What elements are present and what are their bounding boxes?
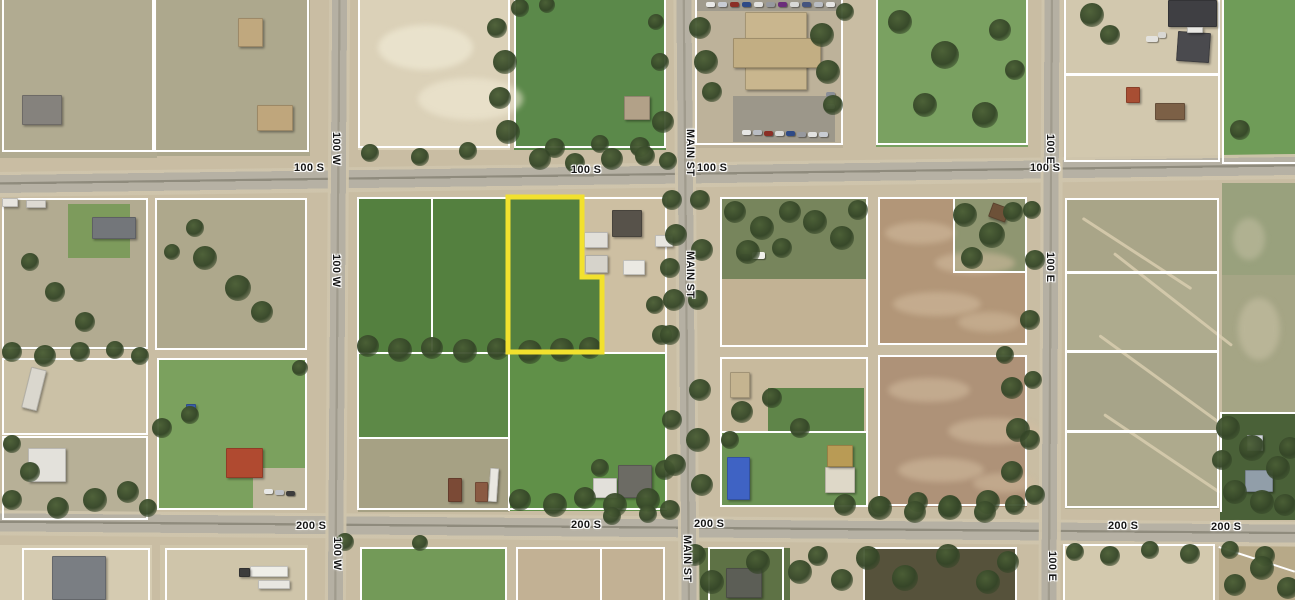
barn-ne-2	[1176, 31, 1211, 63]
shed-w-small-2	[26, 200, 46, 208]
tree	[700, 570, 724, 594]
tree	[836, 3, 854, 21]
shed-mid-1	[584, 232, 608, 248]
parcel-boundary-w-5	[157, 358, 307, 510]
tree	[2, 342, 22, 362]
field-texture-patch	[1238, 298, 1280, 360]
parcel-boundary-dirt-lot	[358, 0, 510, 148]
tree	[702, 82, 722, 102]
parked-car	[730, 2, 739, 7]
tree	[421, 337, 443, 359]
parked-car	[718, 2, 727, 7]
house-w-1	[92, 217, 136, 239]
tree	[193, 246, 217, 270]
tree	[574, 487, 596, 509]
parked-car	[275, 490, 284, 495]
tree	[34, 345, 56, 367]
truck-trailer-1	[250, 566, 288, 577]
shed-e-white	[825, 467, 855, 493]
tree	[816, 60, 840, 84]
tree	[788, 560, 812, 584]
tree	[489, 87, 511, 109]
tree	[45, 282, 65, 302]
tree	[663, 289, 685, 311]
shed-e-1	[730, 372, 750, 398]
street-label: 200 S	[1211, 521, 1241, 533]
tree	[487, 18, 507, 38]
tree	[856, 546, 880, 570]
tree	[1216, 416, 1240, 440]
street-label: 100 E	[1046, 551, 1058, 581]
tree	[543, 493, 567, 517]
tree	[1100, 25, 1120, 45]
parked-car	[766, 2, 775, 7]
tree	[731, 401, 753, 423]
tree	[139, 499, 157, 517]
parked-car	[753, 130, 762, 135]
tree	[976, 570, 1000, 594]
tree	[70, 342, 90, 362]
shed-w-small-1	[2, 198, 18, 207]
street-label: 200 S	[1108, 520, 1138, 532]
tree	[830, 226, 854, 250]
tree	[493, 50, 517, 74]
tree	[931, 41, 959, 69]
tree	[750, 216, 774, 240]
tree	[790, 418, 810, 438]
parcel-boundary-w-2	[155, 198, 307, 350]
parked-car	[819, 132, 828, 137]
parcel-boundary-field-ne	[1222, 0, 1295, 164]
tree	[803, 210, 827, 234]
tree	[913, 93, 937, 117]
tree	[888, 10, 912, 34]
road-100-w	[325, 0, 350, 600]
tree	[1250, 490, 1274, 514]
house-n-tan	[257, 105, 293, 131]
parked-car	[797, 132, 806, 137]
parked-car	[790, 2, 799, 7]
parcel-boundary-farm-ne-b	[1064, 74, 1220, 162]
tree	[186, 219, 204, 237]
tree	[834, 494, 856, 516]
tree	[665, 224, 687, 246]
tree	[1230, 120, 1250, 140]
parked-car	[264, 489, 273, 494]
tree	[1001, 377, 1023, 399]
tree	[848, 200, 868, 220]
tree	[648, 14, 664, 30]
tree	[388, 338, 412, 362]
parcel-boundary-line	[600, 547, 602, 600]
parcel-boundary-se-4	[1065, 431, 1219, 508]
tree	[21, 253, 39, 271]
tree	[1212, 450, 1232, 470]
trailer-ne	[1187, 27, 1203, 33]
road-100-e	[1038, 0, 1063, 600]
tree	[736, 240, 760, 264]
tree	[1023, 201, 1041, 219]
shed-farm-2	[475, 482, 488, 502]
tree	[1006, 418, 1030, 442]
parked-car	[814, 2, 823, 7]
house-ne-brown	[1155, 103, 1185, 120]
parked-car	[764, 131, 773, 136]
tree	[251, 301, 273, 323]
tree	[131, 347, 149, 365]
tree	[20, 462, 40, 482]
parked-car	[286, 491, 295, 496]
tree	[972, 102, 998, 128]
tree	[660, 325, 680, 345]
tree	[689, 379, 711, 401]
parcel-boundary-se-2	[1065, 272, 1219, 352]
shed-mid-2	[585, 255, 608, 273]
tree	[1001, 461, 1023, 483]
parcel-boundary-line	[1220, 412, 1295, 414]
field-texture-patch	[1233, 218, 1265, 260]
street-label: 200 S	[296, 520, 326, 532]
tree	[453, 339, 477, 363]
shed-mid-3	[623, 260, 645, 275]
street-label: 100 S	[294, 162, 324, 174]
tree	[892, 565, 918, 591]
tree	[75, 312, 95, 332]
tree	[997, 551, 1019, 573]
parked-car	[1146, 36, 1158, 42]
storage-building-s	[52, 556, 106, 600]
parcel-boundary-crop-n	[514, 0, 666, 148]
shed-farm-1	[448, 478, 462, 502]
house-nw	[22, 95, 62, 125]
tree	[831, 569, 853, 591]
shed-nw	[238, 18, 263, 47]
truck-trailer-2	[258, 580, 290, 589]
parcel-boundary-line	[357, 437, 509, 439]
tree	[1003, 202, 1023, 222]
tree	[1223, 480, 1247, 504]
tree	[996, 346, 1014, 364]
parked-car	[786, 131, 795, 136]
tree	[164, 244, 180, 260]
parked-car	[775, 131, 784, 136]
tree	[152, 418, 172, 438]
tree	[953, 203, 977, 227]
parked-car	[802, 2, 811, 7]
parcel-map-canvas[interactable]: 100 S100 S100 S100 S200 S200 S200 S200 S…	[0, 0, 1295, 600]
tree	[686, 428, 710, 452]
tree	[1025, 250, 1045, 270]
tree	[651, 53, 669, 71]
street-label: 100 S	[571, 164, 601, 176]
tree	[808, 546, 828, 566]
parked-car	[1158, 32, 1166, 38]
tree	[662, 190, 682, 210]
truck-cab	[239, 568, 250, 577]
tree	[694, 50, 718, 74]
tree	[662, 410, 682, 430]
parked-car	[754, 2, 763, 7]
tree	[961, 247, 983, 269]
tree	[601, 148, 623, 170]
tree	[412, 535, 428, 551]
tree	[664, 454, 686, 476]
street-label: MAIN ST	[684, 251, 696, 298]
tree	[938, 496, 962, 520]
tree	[1180, 544, 1200, 564]
tree	[529, 148, 551, 170]
tree	[868, 496, 892, 520]
parked-car	[706, 2, 715, 7]
tree	[509, 489, 531, 511]
tree	[660, 500, 680, 520]
tree	[746, 550, 770, 574]
tree	[823, 95, 843, 115]
tree	[721, 431, 739, 449]
parked-car	[778, 2, 787, 7]
tree	[639, 505, 657, 523]
parcel-boundary-s-3	[360, 547, 507, 600]
tree	[591, 459, 609, 477]
street-label: 100 E	[1044, 134, 1056, 164]
tree	[1221, 541, 1239, 559]
parcel-boundary-e-4	[878, 355, 1027, 506]
tree	[690, 190, 710, 210]
tree	[689, 17, 711, 39]
street-label: 200 S	[571, 519, 601, 531]
shed-red	[1126, 87, 1140, 103]
tree	[1141, 541, 1159, 559]
tree	[1250, 556, 1274, 580]
tree	[459, 142, 477, 160]
tree	[117, 481, 139, 503]
tree	[1277, 577, 1295, 599]
tree	[762, 388, 782, 408]
tree	[496, 120, 520, 144]
tree	[660, 258, 680, 278]
house-blue-roof	[727, 457, 750, 500]
tree	[1066, 543, 1084, 561]
parked-car	[808, 132, 817, 137]
parcel-boundary-s-4	[516, 547, 665, 600]
house-w-red	[226, 448, 263, 478]
street-label: 100 W	[330, 132, 342, 165]
tree	[411, 148, 429, 166]
tree	[2, 490, 22, 510]
street-label: 100 E	[1044, 252, 1056, 282]
parked-car	[742, 130, 751, 135]
tree	[292, 360, 308, 376]
parked-car	[826, 2, 835, 7]
street-label: 100 S	[697, 162, 727, 174]
street-label: MAIN ST	[681, 535, 693, 582]
street-label: 100 W	[331, 537, 343, 570]
tree	[724, 201, 746, 223]
tree	[904, 501, 926, 523]
tree	[1080, 3, 1104, 27]
tree	[1005, 60, 1025, 80]
house-mid-dark	[612, 210, 642, 237]
tree	[1005, 495, 1025, 515]
tree	[579, 337, 601, 359]
parcel-boundary-line	[431, 197, 433, 351]
parcel-boundary-se-3	[1065, 351, 1219, 432]
tree	[1025, 485, 1045, 505]
tree	[225, 275, 251, 301]
tree	[659, 152, 677, 170]
tree	[779, 201, 801, 223]
tree	[83, 488, 107, 512]
parcel-boundary-line	[508, 353, 510, 511]
tree	[47, 497, 69, 519]
tree	[652, 111, 674, 133]
tree	[361, 144, 379, 162]
parcel-boundary-nw-1	[2, 0, 154, 152]
tree	[1239, 435, 1265, 461]
tree	[772, 238, 792, 258]
tree	[974, 501, 996, 523]
tree	[1224, 574, 1246, 596]
house-n-2	[624, 96, 650, 120]
street-label: MAIN ST	[684, 129, 696, 176]
barn-ne-1	[1168, 0, 1217, 27]
tree	[1274, 494, 1295, 516]
tree	[989, 19, 1011, 41]
tree	[635, 146, 655, 166]
tree	[3, 435, 21, 453]
tree	[646, 296, 664, 314]
tree	[1020, 310, 1040, 330]
tree	[1024, 371, 1042, 389]
tree	[357, 335, 379, 357]
tree	[181, 406, 199, 424]
tree	[1100, 546, 1120, 566]
street-label: 200 S	[694, 518, 724, 530]
parcel-boundary-se-1	[1065, 198, 1219, 273]
street-label: 100 W	[330, 254, 342, 287]
tree	[691, 474, 713, 496]
equipment-tan	[827, 445, 853, 467]
tree	[936, 544, 960, 568]
tree	[1266, 456, 1290, 480]
tree	[1279, 437, 1295, 459]
tree	[810, 23, 834, 47]
tree	[106, 341, 124, 359]
tree	[603, 507, 621, 525]
parked-car	[742, 2, 751, 7]
church-building-wing	[733, 38, 821, 68]
tree	[979, 222, 1005, 248]
